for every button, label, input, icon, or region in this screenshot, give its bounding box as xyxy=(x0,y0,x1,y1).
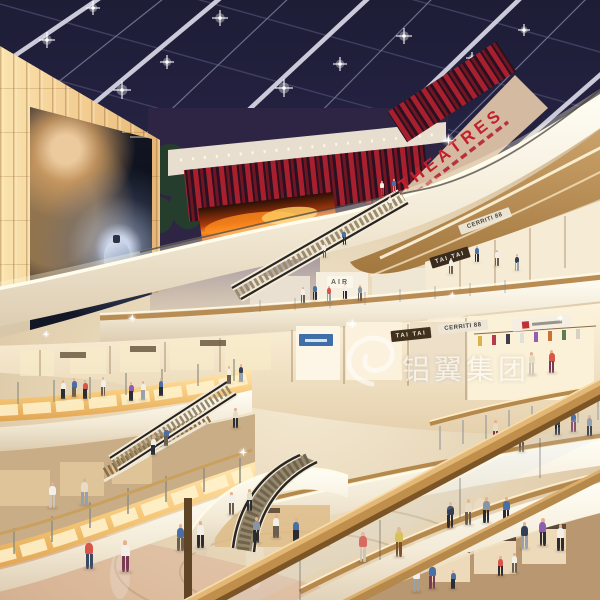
mall-atrium-rendering: THEATRES GUERLAIN xyxy=(0,0,600,600)
foreground-rails-layer xyxy=(0,0,600,600)
foreground-handrail-main xyxy=(181,375,600,600)
